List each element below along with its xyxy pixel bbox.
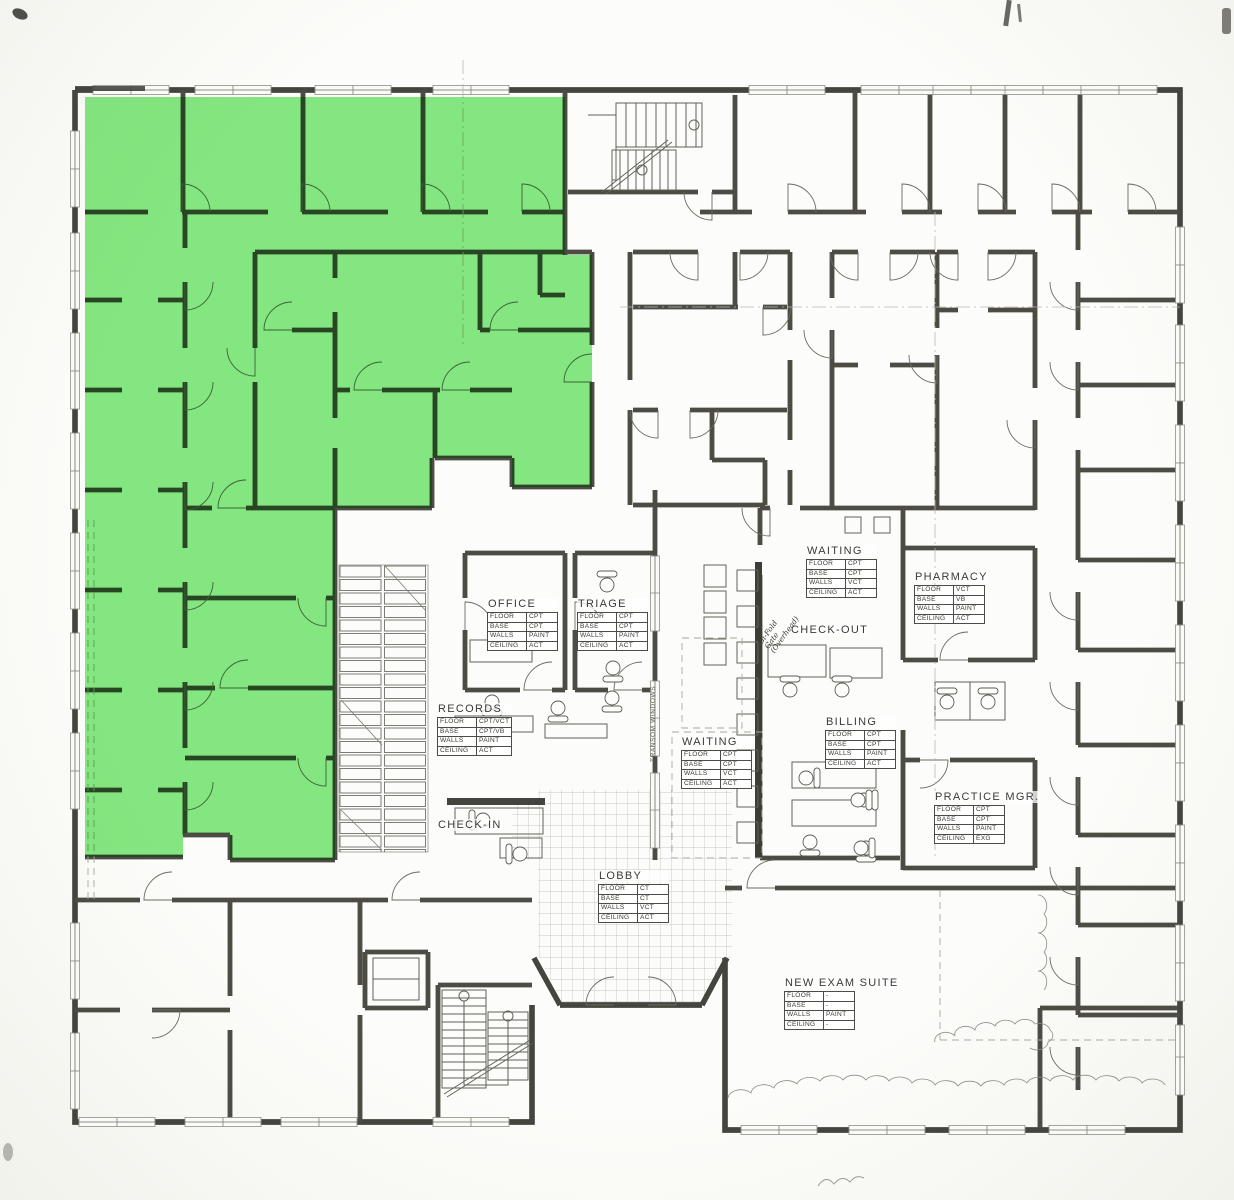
finish-row: CEILINGACT xyxy=(807,588,877,598)
finish-key: WALLS xyxy=(785,1011,824,1021)
finish-row: WALLSPAINT xyxy=(935,825,1005,835)
finish-schedule-table: FLOORVCTBASEVBWALLSPAINTCEILINGACT xyxy=(914,585,985,624)
finish-value: VCT xyxy=(721,770,752,780)
finish-key: WALLS xyxy=(935,825,974,835)
finish-value: PAINT xyxy=(865,750,896,760)
room-label: CHECK-OUT xyxy=(790,624,869,636)
finish-key: WALLS xyxy=(599,904,638,914)
room-label: WAITING xyxy=(806,545,877,557)
finish-value: ACT xyxy=(527,641,558,651)
room-label: PRACTICE MGR. xyxy=(934,791,1040,803)
finish-row: CEILINGACT xyxy=(682,779,752,789)
finish-row: FLOOR- xyxy=(785,992,855,1002)
room-new-exam-suite: NEW EXAM SUITE FLOOR-BASE-WALLSPAINTCEIL… xyxy=(784,977,900,1030)
finish-key: CEILING xyxy=(826,759,865,769)
finish-value: PAINT xyxy=(824,1011,855,1021)
finish-value: VCT xyxy=(846,579,877,589)
finish-value: CPT/VB xyxy=(477,727,512,737)
finish-value: ACT xyxy=(865,759,896,769)
finish-row: BASECT xyxy=(599,894,669,904)
room-waiting-lower: WAITING FLOORCPTBASECPTWALLSVCTCEILINGAC… xyxy=(681,736,752,789)
finish-key: FLOOR xyxy=(785,992,824,1002)
finish-key: CEILING xyxy=(682,779,721,789)
finish-row: FLOORCPT xyxy=(488,613,558,623)
room-label: LOBBY xyxy=(598,870,669,882)
finish-key: FLOOR xyxy=(599,885,638,895)
finish-row: FLOORCPT xyxy=(682,751,752,761)
finish-value: CPT xyxy=(617,622,648,632)
finish-row: BASECPT xyxy=(807,569,877,579)
room-records: RECORDS FLOORCPT/VCTBASECPT/VBWALLSPAINT… xyxy=(437,703,512,756)
finish-row: FLOORCPT xyxy=(578,613,648,623)
finish-row: FLOORCPT xyxy=(826,731,896,741)
finish-value: - xyxy=(824,1020,855,1030)
finish-value: ACT xyxy=(638,913,669,923)
finish-value: CPT xyxy=(527,613,558,623)
finish-row: CEILINGACT xyxy=(578,641,648,651)
room-label: NEW EXAM SUITE xyxy=(784,977,900,989)
finish-row: CEILINGACT xyxy=(599,913,669,923)
finish-key: WALLS xyxy=(826,750,865,760)
finish-schedule-table: FLOORCPTBASECPTWALLSPAINTCEILINGACT xyxy=(487,612,558,651)
finish-row: WALLSPAINT xyxy=(915,605,985,615)
finish-key: CEILING xyxy=(915,614,954,624)
finish-key: FLOOR xyxy=(915,586,954,596)
finish-row: CEILINGACT xyxy=(438,746,512,756)
finish-value: CT xyxy=(638,885,669,895)
finish-key: WALLS xyxy=(438,737,477,747)
finish-row: FLOORCPT xyxy=(807,560,877,570)
finish-key: BASE xyxy=(785,1001,824,1011)
finish-value: VCT xyxy=(954,586,985,596)
room-office: OFFICE FLOORCPTBASECPTWALLSPAINTCEILINGA… xyxy=(487,598,558,651)
finish-value: CPT xyxy=(846,569,877,579)
finish-row: BASECPT xyxy=(682,760,752,770)
finish-schedule-table: FLOORCPTBASECPTWALLSPAINTCEILINGACT xyxy=(577,612,648,651)
finish-key: BASE xyxy=(935,815,974,825)
finish-key: FLOOR xyxy=(682,751,721,761)
finish-key: WALLS xyxy=(807,579,846,589)
finish-row: BASECPT xyxy=(826,740,896,750)
finish-value: PAINT xyxy=(974,825,1005,835)
records-shelving xyxy=(339,565,428,852)
finish-row: CEILINGACT xyxy=(488,641,558,651)
finish-row: WALLSPAINT xyxy=(438,737,512,747)
finish-row: CEILINGACT xyxy=(826,759,896,769)
finish-value: EXG xyxy=(974,834,1005,844)
finish-row: WALLSPAINT xyxy=(826,750,896,760)
finish-key: WALLS xyxy=(488,632,527,642)
finish-row: BASECPT xyxy=(488,622,558,632)
finish-schedule-table: FLOORCPTBASECPTWALLSVCTCEILINGACT xyxy=(681,750,752,789)
finish-row: BASE- xyxy=(785,1001,855,1011)
finish-key: CEILING xyxy=(599,913,638,923)
finish-key: BASE xyxy=(807,569,846,579)
finish-value: CPT xyxy=(974,806,1005,816)
room-label: TRIAGE xyxy=(577,598,648,610)
floor-plan-page: OFFICE FLOORCPTBASECPTWALLSPAINTCEILINGA… xyxy=(0,0,1234,1200)
finish-key: CEILING xyxy=(488,641,527,651)
finish-key: BASE xyxy=(682,760,721,770)
finish-row: BASECPT xyxy=(935,815,1005,825)
finish-row: WALLSPAINT xyxy=(578,632,648,642)
finish-value: CPT xyxy=(617,613,648,623)
finish-key: CEILING xyxy=(785,1020,824,1030)
finish-value: CPT xyxy=(846,560,877,570)
finish-key: FLOOR xyxy=(488,613,527,623)
finish-key: BASE xyxy=(438,727,477,737)
room-label: PHARMACY xyxy=(914,571,989,583)
finish-key: FLOOR xyxy=(438,718,477,728)
finish-value: CT xyxy=(638,894,669,904)
room-check-out: CHECK-OUT xyxy=(790,624,869,636)
finish-value: CPT/VCT xyxy=(477,718,512,728)
room-label: OFFICE xyxy=(487,598,558,610)
room-pharmacy: PHARMACY FLOORVCTBASEVBWALLSPAINTCEILING… xyxy=(914,571,989,624)
finish-key: FLOOR xyxy=(807,560,846,570)
finish-key: FLOOR xyxy=(578,613,617,623)
finish-value: CPT xyxy=(865,740,896,750)
finish-key: BASE xyxy=(488,622,527,632)
finish-row: BASEVB xyxy=(915,595,985,605)
finish-row: WALLSPAINT xyxy=(785,1011,855,1021)
finish-row: WALLSVCT xyxy=(807,579,877,589)
room-check-in: CHECK-IN xyxy=(437,819,503,831)
finish-schedule-table: FLOORCPT/VCTBASECPT/VBWALLSPAINTCEILINGA… xyxy=(437,717,512,756)
finish-row: FLOORCPT/VCT xyxy=(438,718,512,728)
finish-value: CPT xyxy=(527,622,558,632)
finish-value: CPT xyxy=(721,751,752,761)
finish-key: BASE xyxy=(826,740,865,750)
room-label: RECORDS xyxy=(437,703,512,715)
finish-row: CEILING- xyxy=(785,1020,855,1030)
finish-schedule-table: FLOOR-BASE-WALLSPAINTCEILING- xyxy=(784,991,855,1030)
room-waiting-upper: WAITING FLOORCPTBASECPTWALLSVCTCEILINGAC… xyxy=(806,545,877,598)
finish-schedule-table: FLOORCTBASECTWALLSVCTCEILINGACT xyxy=(598,884,669,923)
finish-schedule-table: FLOORCPTBASECPTWALLSPAINTCEILINGEXG xyxy=(934,805,1005,844)
finish-row: FLOORVCT xyxy=(915,586,985,596)
finish-value: CPT xyxy=(865,731,896,741)
finish-value: ACT xyxy=(846,588,877,598)
finish-key: BASE xyxy=(599,894,638,904)
finish-key: WALLS xyxy=(578,632,617,642)
room-label: BILLING xyxy=(825,716,896,728)
room-lobby: LOBBY FLOORCTBASECTWALLSVCTCEILINGACT xyxy=(598,870,669,923)
finish-key: BASE xyxy=(915,595,954,605)
finish-key: FLOOR xyxy=(935,806,974,816)
finish-value: ACT xyxy=(477,746,512,756)
finish-value: ACT xyxy=(617,641,648,651)
finish-value: - xyxy=(824,992,855,1002)
finish-row: FLOORCT xyxy=(599,885,669,895)
finish-value: - xyxy=(824,1001,855,1011)
finish-key: WALLS xyxy=(682,770,721,780)
transom-windows-label: TRANSOM WINDOWS xyxy=(650,686,657,762)
finish-value: ACT xyxy=(954,614,985,624)
finish-value: CPT xyxy=(974,815,1005,825)
finish-key: FLOOR xyxy=(826,731,865,741)
finish-value: PAINT xyxy=(527,632,558,642)
finish-row: WALLSVCT xyxy=(599,904,669,914)
finish-value: ACT xyxy=(721,779,752,789)
finish-schedule-table: FLOORCPTBASECPTWALLSVCTCEILINGACT xyxy=(806,559,877,598)
finish-value: PAINT xyxy=(477,737,512,747)
finish-row: FLOORCPT xyxy=(935,806,1005,816)
finish-row: CEILINGEXG xyxy=(935,834,1005,844)
finish-value: VCT xyxy=(638,904,669,914)
finish-row: WALLSVCT xyxy=(682,770,752,780)
finish-row: WALLSPAINT xyxy=(488,632,558,642)
finish-row: BASECPT xyxy=(578,622,648,632)
finish-key: CEILING xyxy=(438,746,477,756)
room-label: WAITING xyxy=(681,736,752,748)
room-practice-mgr: PRACTICE MGR. FLOORCPTBASECPTWALLSPAINTC… xyxy=(934,791,1040,844)
finish-row: BASECPT/VB xyxy=(438,727,512,737)
room-billing: BILLING FLOORCPTBASECPTWALLSPAINTCEILING… xyxy=(825,716,896,769)
room-label: CHECK-IN xyxy=(437,819,503,831)
finish-key: WALLS xyxy=(915,605,954,615)
finish-value: VB xyxy=(954,595,985,605)
finish-value: CPT xyxy=(721,760,752,770)
finish-value: PAINT xyxy=(617,632,648,642)
finish-row: CEILINGACT xyxy=(915,614,985,624)
room-triage: TRIAGE FLOORCPTBASECPTWALLSPAINTCEILINGA… xyxy=(577,598,648,651)
finish-key: CEILING xyxy=(935,834,974,844)
finish-key: CEILING xyxy=(807,588,846,598)
finish-value: PAINT xyxy=(954,605,985,615)
finish-key: CEILING xyxy=(578,641,617,651)
highlighted-area xyxy=(85,97,592,860)
finish-key: BASE xyxy=(578,622,617,632)
finish-schedule-table: FLOORCPTBASECPTWALLSPAINTCEILINGACT xyxy=(825,730,896,769)
